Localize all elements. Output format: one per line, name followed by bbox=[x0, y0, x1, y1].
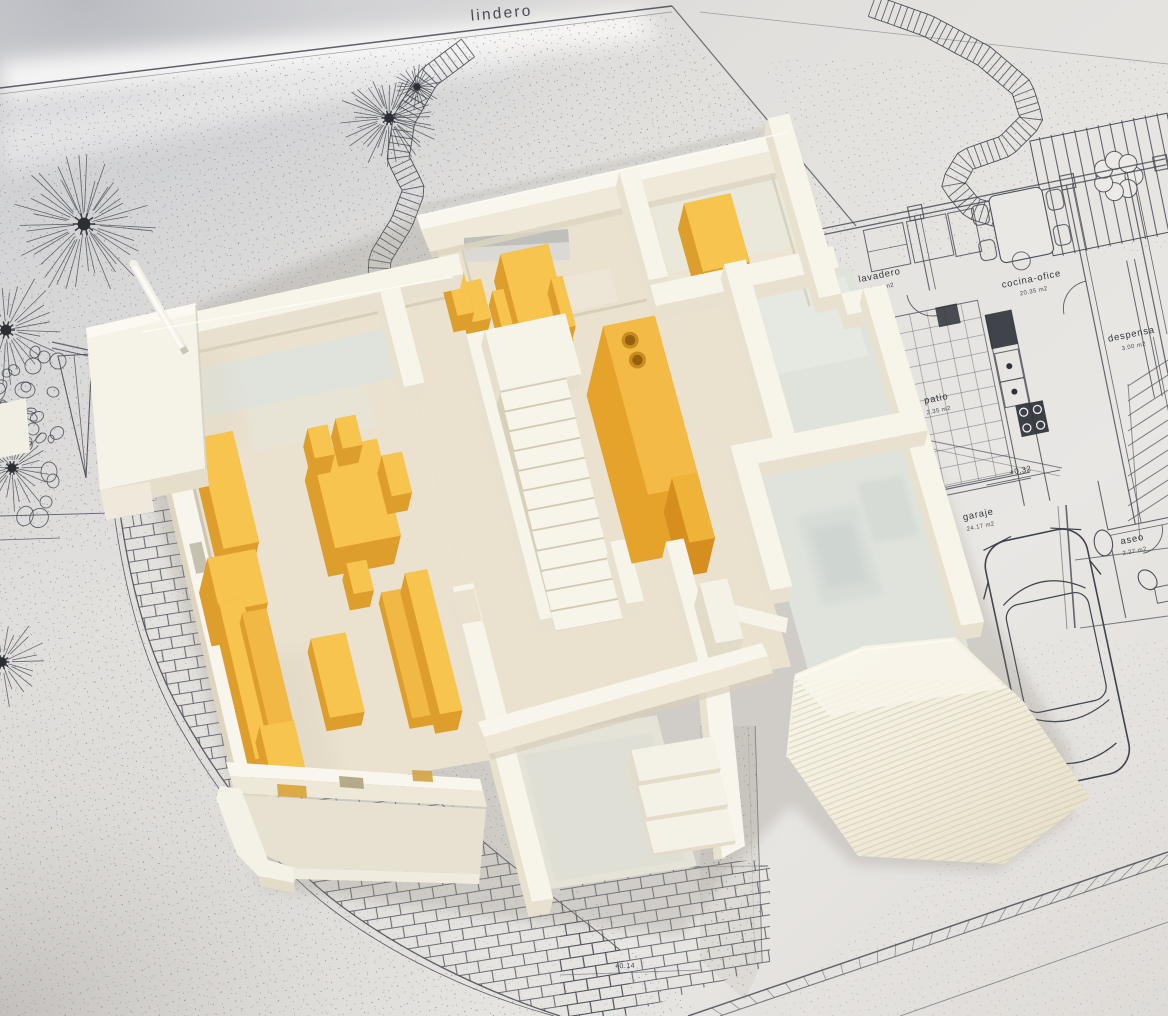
svg-text:+0.14: +0.14 bbox=[615, 962, 636, 970]
